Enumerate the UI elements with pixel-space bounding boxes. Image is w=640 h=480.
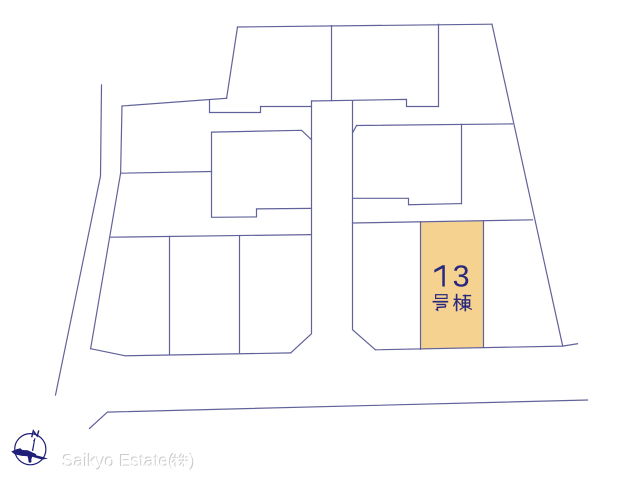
svg-text:3: 3 <box>453 260 470 294</box>
svg-text:Saikyo Estate(: Saikyo Estate( <box>63 451 175 471</box>
svg-text:): ) <box>190 451 196 471</box>
